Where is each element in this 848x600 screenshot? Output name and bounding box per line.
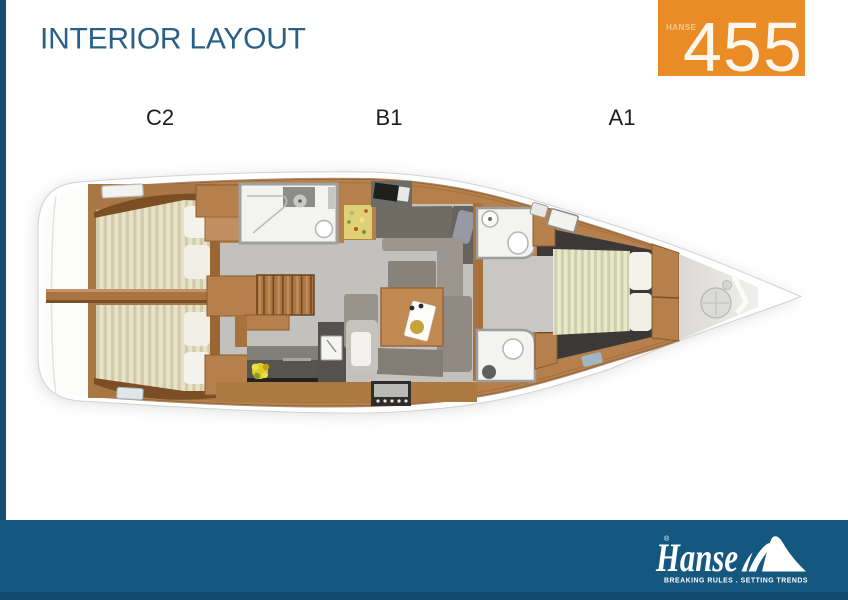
svg-text:455: 455 — [683, 8, 803, 86]
svg-text:A1: A1 — [609, 105, 636, 130]
svg-text:BREAKING RULES . SETTING TREND: BREAKING RULES . SETTING TRENDS — [664, 578, 808, 585]
svg-text:INTERIOR LAYOUT: INTERIOR LAYOUT — [40, 23, 306, 56]
svg-text:B1: B1 — [376, 105, 403, 130]
svg-text:C2: C2 — [146, 105, 174, 130]
svg-text:®: ® — [664, 535, 670, 543]
